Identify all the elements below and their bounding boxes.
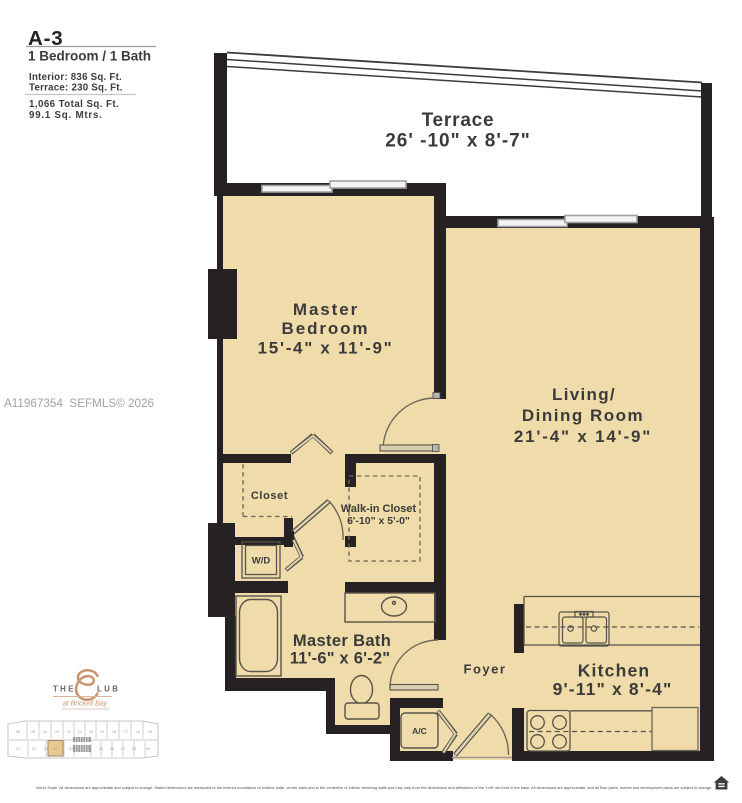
svg-text:25: 25 <box>31 730 35 734</box>
svg-text:A/C: A/C <box>412 726 427 736</box>
svg-text:9'-11" x 8'-4": 9'-11" x 8'-4" <box>553 679 673 699</box>
svg-text:17: 17 <box>124 730 128 734</box>
svg-text:05: 05 <box>99 747 103 751</box>
svg-text:26' -10" x 8'-7": 26' -10" x 8'-7" <box>385 131 531 152</box>
svg-text:W/D: W/D <box>252 556 271 567</box>
svg-text:Dining Room: Dining Room <box>522 406 644 425</box>
svg-text:1,066 Total Sq. Ft.: 1,066 Total Sq. Ft. <box>29 99 119 110</box>
svg-text:6'-10" x 5'-0": 6'-10" x 5'-0" <box>347 515 410 527</box>
svg-text:Terrace: 230 Sq. Ft.: Terrace: 230 Sq. Ft. <box>29 83 123 94</box>
svg-text:01: 01 <box>32 747 36 751</box>
svg-text:Terrace: Terrace <box>422 110 495 131</box>
svg-text:99.1 Sq. Mtrs.: 99.1 Sq. Mtrs. <box>29 110 103 121</box>
svg-text:21'-4" x 14'-9": 21'-4" x 14'-9" <box>514 427 652 446</box>
svg-text:21: 21 <box>78 730 82 734</box>
svg-text:09: 09 <box>146 747 150 751</box>
svg-text:16: 16 <box>136 730 140 734</box>
svg-text:LUB: LUB <box>97 685 120 694</box>
svg-text:03: 03 <box>53 747 57 751</box>
svg-text:22: 22 <box>67 730 71 734</box>
svg-text:04: 04 <box>69 747 73 751</box>
svg-text:Master: Master <box>293 300 359 319</box>
svg-text:Kitchen: Kitchen <box>578 661 651 681</box>
svg-text:26: 26 <box>16 730 20 734</box>
svg-text:Not to Scale. All dimensions a: Not to Scale. All dimensions are approxi… <box>36 786 712 790</box>
svg-text:24: 24 <box>43 730 47 734</box>
svg-text:20: 20 <box>89 730 93 734</box>
svg-text:Bedroom: Bedroom <box>282 319 370 338</box>
svg-text:02: 02 <box>44 747 48 751</box>
svg-text:THE: THE <box>53 685 76 694</box>
svg-text:1 Bedroom / 1 Bath: 1 Bedroom / 1 Bath <box>28 49 151 64</box>
svg-text:08: 08 <box>132 747 136 751</box>
svg-text:Living/: Living/ <box>552 385 616 404</box>
svg-text:11'-6" x 6'-2": 11'-6" x 6'-2" <box>290 650 391 668</box>
svg-text:Walk-in Closet: Walk-in Closet <box>341 503 417 515</box>
svg-text:19: 19 <box>100 730 104 734</box>
svg-text:18: 18 <box>112 730 116 734</box>
svg-text:Closet: Closet <box>251 490 288 502</box>
svg-text:23: 23 <box>55 730 59 734</box>
svg-text:07: 07 <box>121 747 125 751</box>
svg-text:15: 15 <box>148 730 152 734</box>
svg-text:A11967354 SEFMLS© 2026: A11967354 SEFMLS© 2026 <box>4 397 154 410</box>
svg-text:Master Bath: Master Bath <box>293 632 391 650</box>
svg-text:Interior: 836 Sq. Ft.: Interior: 836 Sq. Ft. <box>29 72 122 83</box>
svg-text:Foyer: Foyer <box>464 662 507 677</box>
svg-text:15'-4" x 11'-9": 15'-4" x 11'-9" <box>258 339 394 358</box>
svg-text:27: 27 <box>16 747 20 751</box>
svg-text:06: 06 <box>110 747 114 751</box>
svg-text:at Brickell Bay: at Brickell Bay <box>63 701 108 708</box>
